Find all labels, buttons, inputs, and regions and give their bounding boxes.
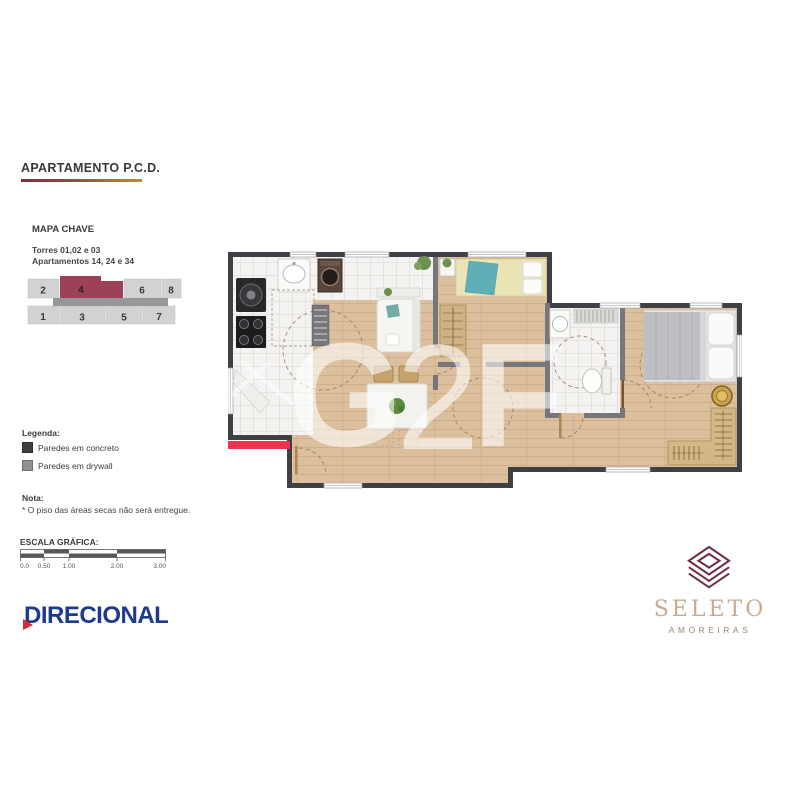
seleto-diamond-icon <box>687 544 731 594</box>
svg-text:5: 5 <box>121 313 127 324</box>
svg-text:3.00: 3.00 <box>153 563 166 570</box>
svg-text:8: 8 <box>168 286 174 297</box>
floor-plan-page: APARTAMENTO P.C.D. MAPA CHAVE Torres 01,… <box>0 0 800 800</box>
project-name: SELETO <box>640 597 780 622</box>
graphic-scale-bar: 0.0 0.50 1.00 2.00 3.00 <box>20 549 168 571</box>
svg-text:2: 2 <box>40 286 46 297</box>
floor-plan-drawing <box>228 250 742 490</box>
svg-text:1: 1 <box>40 312 46 323</box>
svg-text:0.0: 0.0 <box>20 563 29 570</box>
entry-marker <box>228 441 290 449</box>
key-map-highlighted-unit <box>60 276 123 298</box>
scale-heading: ESCALA GRÁFICA: <box>20 537 99 547</box>
svg-text:0.50: 0.50 <box>38 563 51 570</box>
legend-item-concrete: Paredes em concreto <box>22 442 119 453</box>
svg-text:3: 3 <box>79 313 85 324</box>
scale-tick-labels: 0.0 0.50 1.00 2.00 3.00 <box>20 563 166 570</box>
svg-text:6: 6 <box>139 286 145 297</box>
legend-item-label: Paredes em concreto <box>38 443 119 453</box>
page-title: APARTAMENTO P.C.D. <box>21 161 160 175</box>
concrete-swatch <box>22 442 33 453</box>
keymap-apartments-line: Apartamentos 14, 24 e 34 <box>32 256 134 266</box>
drywall-swatch <box>22 460 33 471</box>
svg-text:2.00: 2.00 <box>111 563 124 570</box>
title-underline <box>21 179 142 182</box>
project-subtitle: AMOREIRAS <box>640 625 780 635</box>
svg-text:1.00: 1.00 <box>63 563 76 570</box>
scale-ticks <box>21 558 166 562</box>
keymap-heading: MAPA CHAVE <box>32 224 94 235</box>
svg-text:4: 4 <box>78 285 84 296</box>
legend-item-label: Paredes em drywall <box>38 461 113 471</box>
legend-item-drywall: Paredes em drywall <box>22 460 113 471</box>
key-map: 2 4 6 8 1 3 5 7 <box>18 271 183 329</box>
legend-heading: Legenda: <box>22 428 60 438</box>
note-heading: Nota: <box>22 493 44 503</box>
svg-text:7: 7 <box>156 312 162 323</box>
keymap-towers-line: Torres 01,02 e 03 <box>32 245 100 255</box>
direcional-logo: DIRECIONAL <box>24 602 168 630</box>
note-text: * O piso das áreas secas não será entreg… <box>22 505 190 515</box>
key-map-corridor <box>53 298 168 306</box>
